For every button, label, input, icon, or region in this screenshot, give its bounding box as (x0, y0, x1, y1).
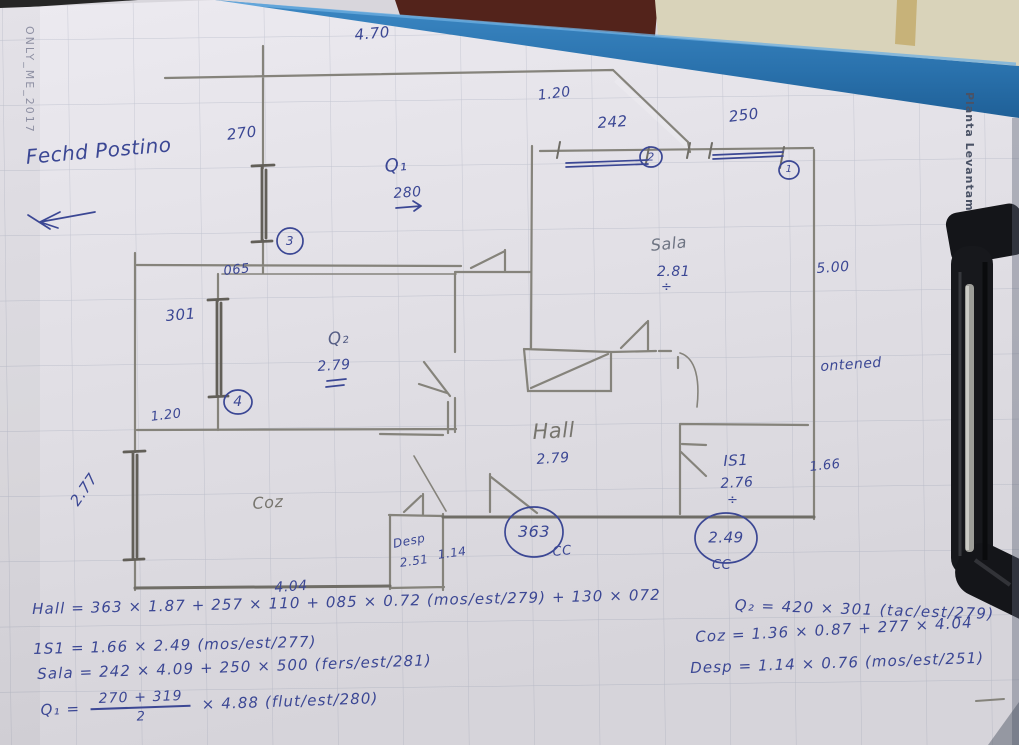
pen-clip (944, 202, 1019, 637)
foreground-objects (0, 0, 1019, 745)
clipboard-photo: ONLY_ME_2017 Planta Levantamento Fechd P… (0, 0, 1019, 745)
